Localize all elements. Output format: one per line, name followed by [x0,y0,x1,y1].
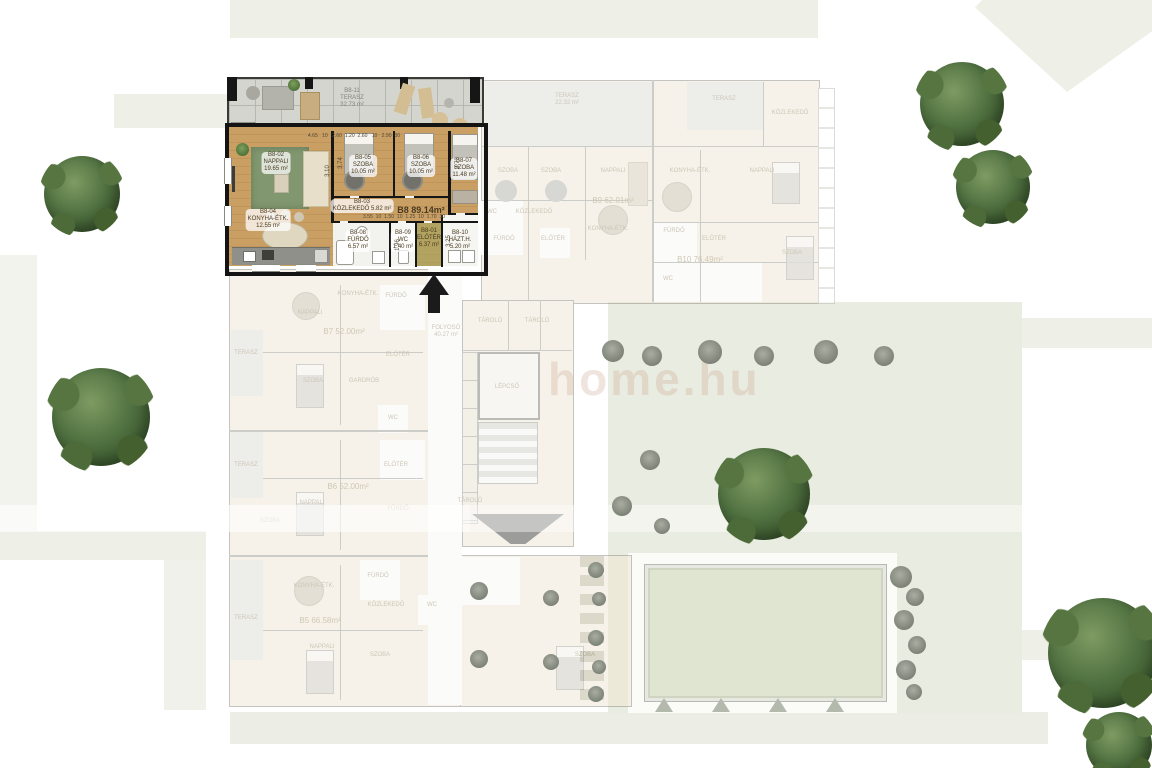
tree [52,368,150,466]
dims-bottom: 3.55 10 1.50 10 1.25 10 1.70 30 [363,214,445,219]
room-label-furdo: B8-08FÜRDŐ6.57 m² [345,230,370,252]
dim-3-10: 3.10 [325,165,331,177]
terrace-name: TERASZ [340,95,364,101]
terrace-table [300,92,320,120]
room-label-szoba1: B8-05SZOBA10.05 m² [349,155,377,177]
shrub [640,450,660,470]
tree [956,150,1030,224]
shrub [592,592,606,606]
shrub [470,650,488,668]
shrub [698,340,722,364]
shrub [906,684,922,700]
site-plan: B9 62.01m² B10 76.49m² B7 52.00m² B6 52.… [0,0,1152,768]
room-label-kozlekedo: B8-03KÖZLEKEDŐ 5.82 m² [331,199,394,213]
shrub [654,518,670,534]
room-label-nappali: B8-02NAPPALI19.65 m² [262,152,291,174]
tree [920,62,1004,146]
dim-1-96: 1.96 [395,239,401,251]
tree [1048,598,1152,708]
b8-terrace-label: B8-11 TERASZ 32.73 m² [340,88,364,110]
shrub [592,660,606,674]
room-label-szoba2: B8-06SZOBA10.05 m² [407,155,435,177]
entrance-arrow-icon [419,274,449,314]
dims-top: 4.65 10 2.60 1.20 2.60 10 2.90 30 [308,133,400,138]
shrub [890,566,912,588]
shrub [602,340,624,362]
tree [44,156,120,232]
terrace-code: B8-11 [344,88,360,94]
shrub [543,590,559,606]
shrub [814,340,838,364]
room-label-konyha: B8-04KONYHA-ÉTK.12.55 m² [246,209,291,231]
dim-3-74: 3.74 [338,157,344,169]
terrace-plant [288,79,300,91]
shrub [543,654,559,670]
shrub [906,588,924,606]
shrub [642,346,662,366]
dim-3-73: 3.73 [455,157,461,169]
room-label-eloter: B8-01ELŐTÉR6.37 m² [417,228,441,250]
shrub [612,496,632,516]
shrub [470,582,488,600]
shrub [874,346,894,366]
shrub [908,636,926,654]
terrace-area: 32.73 m² [340,102,364,108]
room-label-hazth: B8-10HÁZT.H.5.20 m² [449,230,472,252]
dim-3-25: 3.25 [446,235,452,247]
tree [718,448,810,540]
shrub [588,630,604,646]
terrace-round-chair [246,86,260,100]
tree [1086,712,1152,768]
shrub [588,686,604,702]
shrub [894,610,914,630]
shrub [896,660,916,680]
shrub [754,346,774,366]
terrace-side-table [444,98,454,108]
shrub [588,562,604,578]
